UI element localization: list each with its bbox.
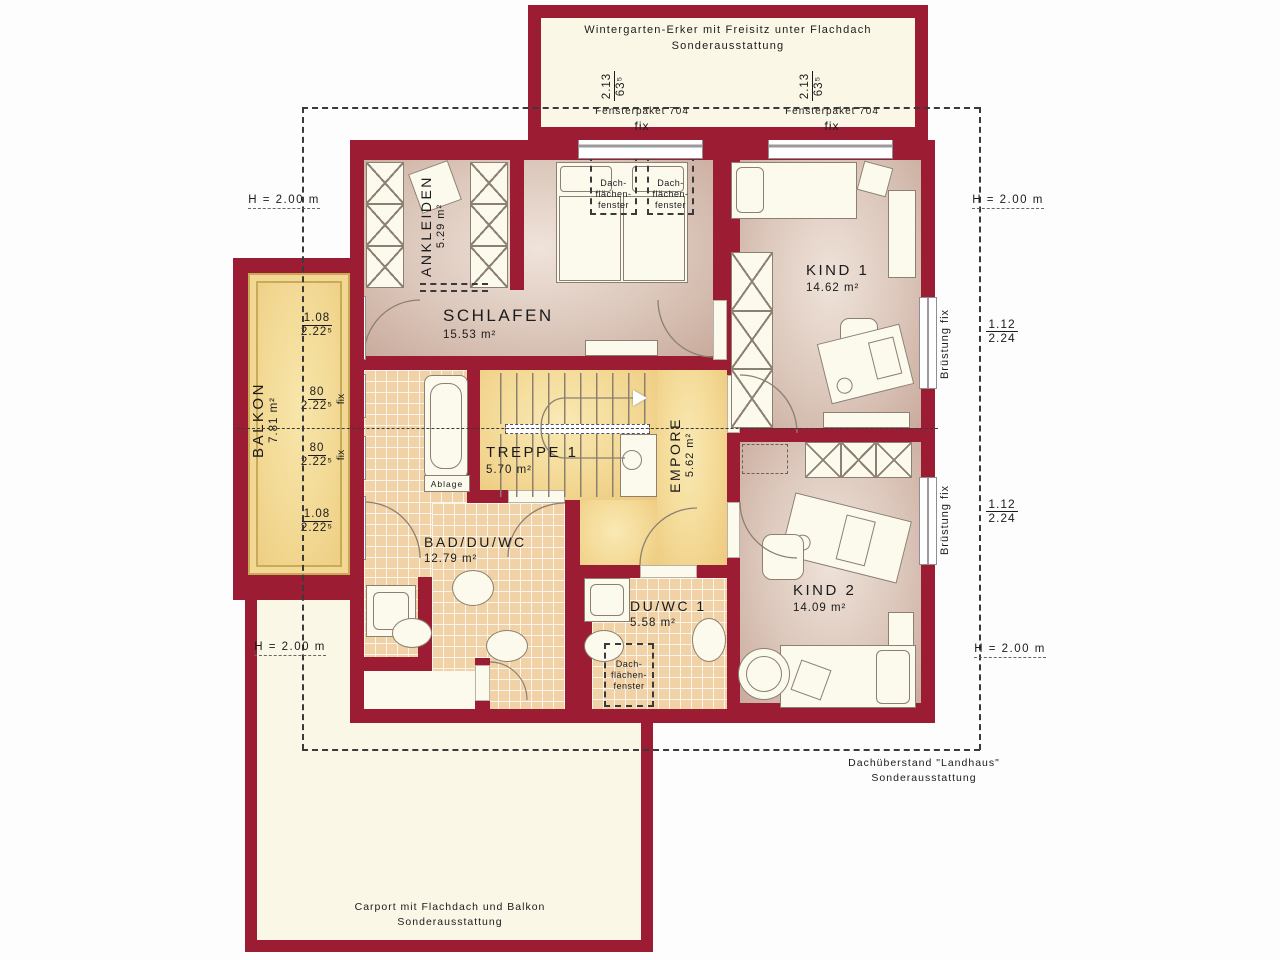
room-area: 5.29 m² [435, 161, 447, 291]
room-area: 5.58 m² [630, 617, 707, 629]
wintergarten-title-line1: Wintergarten-Erker mit Freisitz unter Fl… [528, 22, 928, 38]
room-name: KIND 1 [806, 262, 869, 279]
kind1-label: KIND 1 14.62 m² [806, 262, 869, 294]
fix-label-left: fix [570, 119, 714, 133]
wintergarten-title-line2: Sonderausstattung [528, 38, 928, 54]
dim-value: 1.08 [302, 508, 332, 522]
dim-value: 63⁵ [615, 76, 627, 97]
shelf-kind1 [823, 412, 910, 428]
roof-window-line: fenster [595, 200, 631, 211]
ankleiden-label: ANKLEIDEN 5.29 m² [418, 161, 458, 291]
roof-window-line: Dach- [652, 178, 688, 189]
roof-window-line: Dach- [611, 659, 647, 670]
wardrobe-cell [470, 246, 508, 288]
room-name: BAD/DU/WC [424, 534, 527, 550]
shower-duwc-tray [590, 584, 624, 616]
wall-empore-bottom-left [580, 565, 640, 578]
dim-value: 1.12 [986, 318, 1017, 332]
dim-value: 2.22⁵ [301, 456, 333, 468]
kind2-label: KIND 2 14.09 m² [793, 582, 856, 614]
floor-plan: Carport mit Flachdach und Balkon Sondera… [0, 0, 1280, 960]
room-name: KIND 2 [793, 582, 856, 599]
room-name: ANKLEIDEN [418, 161, 434, 291]
dim-value: 2.13 [799, 71, 813, 101]
empore-label: EMPORE 5.62 m² [667, 400, 705, 510]
dim-value: 2.13 [601, 71, 615, 101]
door-leaf-niche [475, 665, 490, 701]
wardrobe-right [470, 162, 508, 288]
height-mark-text: H = 2.00 m [248, 194, 320, 209]
bathtub-inner [430, 383, 462, 469]
section-line [237, 428, 938, 429]
pillow [736, 167, 764, 213]
wardrobe-cell [366, 204, 404, 246]
roof-window-label: Dach- flächen- fenster [652, 178, 688, 213]
fix-label: fix [335, 383, 349, 415]
height-mark-bottom-right: H = 2.00 m [952, 639, 1068, 657]
bad-label: BAD/DU/WC 12.79 m² [424, 534, 527, 565]
fix-label-right: fix [760, 119, 904, 133]
floor-niche [364, 671, 475, 709]
wardrobe-cell [876, 442, 912, 478]
room-name: DU/WC 1 [630, 598, 707, 614]
roof-window-box: Dach- flächen- fenster [647, 155, 694, 215]
wardrobe-cell [731, 252, 773, 311]
desk-lamp [835, 376, 854, 395]
bruestung-label-kind1: Brüstung fix [939, 302, 955, 386]
room-area: 14.62 m² [806, 282, 869, 294]
treppe-label: TREPPE 1 5.70 m² [486, 444, 579, 476]
dachueberstand-note: Dachüberstand "Landhaus" Sonderausstattu… [796, 756, 1052, 786]
door-arc [640, 508, 697, 565]
wintergarten-title: Wintergarten-Erker mit Freisitz unter Fl… [528, 22, 928, 54]
door-arc [658, 300, 713, 357]
wall-ankleiden [510, 160, 524, 290]
cabinet-kind1 [888, 190, 916, 278]
roof-window-box: Dach- flächen- fenster [604, 643, 654, 707]
schlafen-label: SCHLAFEN 15.53 m² [443, 306, 554, 341]
wintergarten-dim-right: 2.13 63⁵ [799, 60, 833, 112]
dim-value: 80 [308, 442, 327, 456]
room-area: 12.79 m² [424, 553, 527, 565]
roof-window-label: Dach- flächen- fenster [595, 178, 631, 213]
desk-monitor [868, 336, 902, 379]
wardrobe-left [366, 162, 404, 288]
dim-value: 2.24 [988, 511, 1015, 525]
room-name: EMPORE [667, 400, 683, 510]
wintergarten-dim-left: 2.13 63⁵ [601, 60, 635, 112]
height-mark-top-left: H = 2.00 m [228, 190, 340, 208]
wall-empore-bottom-right [697, 565, 727, 578]
window-kind2 [919, 477, 937, 565]
height-mark-text: H = 2.00 m [972, 194, 1044, 209]
dim-value: 2.22⁵ [301, 400, 333, 412]
stairs-arrow [633, 390, 647, 406]
roof-window-label: Dach- flächen- fenster [611, 659, 647, 692]
ablage-shelf: Ablage [424, 475, 470, 492]
wardrobe-cell [805, 442, 841, 478]
door-arc [740, 375, 797, 433]
dim-value: 1.12 [986, 498, 1017, 512]
room-area: 7.81 m² [268, 358, 280, 482]
dim-value: 2.24 [988, 331, 1015, 345]
roof-window-box: Dach- flächen- fenster [590, 155, 637, 215]
wardrobe-kind2 [805, 442, 912, 478]
wardrobe-cell [841, 442, 877, 478]
balkon-label: BALKON 7.81 m² [250, 358, 294, 482]
dim-value: 2.22⁵ [301, 522, 333, 534]
pillow [876, 650, 910, 704]
dim-value: 63⁵ [813, 76, 825, 97]
bidet-bad [392, 618, 432, 648]
height-mark-text: H = 2.00 m [974, 643, 1046, 658]
toilet-bad [486, 630, 528, 662]
roof-window-line: fenster [652, 200, 688, 211]
desk-monitor [836, 514, 876, 566]
door-leaf-schlafen [713, 300, 727, 360]
ablage-label: Ablage [431, 479, 463, 489]
roof-window-line: fenster [611, 681, 647, 692]
dachueberstand-line1: Dachüberstand "Landhaus" [796, 756, 1052, 771]
room-area: 5.62 m² [684, 400, 696, 510]
dim-value: 1.08 [302, 312, 332, 326]
dim-value: 80 [308, 386, 327, 400]
carport-note-line2: Sonderausstattung [310, 915, 590, 930]
room-area: 15.53 m² [443, 329, 554, 341]
roof-window-line: Dach- [595, 178, 631, 189]
height-mark-text: H = 2.00 m [254, 641, 326, 656]
door-arc [364, 300, 420, 356]
dashed-closet-kind2 [742, 444, 788, 474]
roof-outline-top [302, 107, 980, 109]
carport-note: Carport mit Flachdach und Balkon Sondera… [310, 900, 590, 930]
room-area: 5.70 m² [486, 464, 579, 476]
door-arc [364, 502, 420, 558]
dresser [585, 340, 658, 356]
right-dim-kind1: 1.12 2.24 [980, 318, 1024, 345]
door-leaf-duwc [640, 565, 697, 578]
round-chair-seat [746, 656, 782, 692]
door-arc [740, 502, 797, 558]
window-kind1 [919, 297, 937, 389]
room-name: SCHLAFEN [443, 306, 554, 326]
wardrobe-cell [470, 162, 508, 204]
sink-bad [452, 570, 494, 606]
roof-window-line: flächen- [595, 189, 631, 200]
height-mark-bottom-left: H = 2.00 m [234, 637, 346, 655]
fix-label: fix [335, 439, 349, 471]
wardrobe-cell [731, 311, 773, 370]
roof-window-line: flächen- [611, 670, 647, 681]
roof-window-line: flächen- [652, 189, 688, 200]
wardrobe-cell [366, 246, 404, 288]
door-leaf-kind2 [727, 502, 740, 558]
wardrobe-cell [470, 204, 508, 246]
wardrobe-cell [366, 162, 404, 204]
dim-value: 2.22⁵ [301, 326, 333, 338]
right-dim-kind2: 1.12 2.24 [980, 498, 1024, 525]
dachueberstand-line2: Sonderausstattung [796, 771, 1052, 786]
roof-outline-bottom [302, 749, 980, 751]
height-mark-top-right: H = 2.00 m [950, 190, 1066, 208]
door-arc [490, 662, 527, 700]
room-name: TREPPE 1 [486, 444, 579, 461]
duwc-label: DU/WC 1 5.58 m² [630, 598, 707, 629]
bruestung-label-kind2: Brüstung fix [939, 478, 955, 562]
carport-note-line1: Carport mit Flachdach und Balkon [310, 900, 590, 915]
room-name: BALKON [250, 358, 267, 482]
room-area: 14.09 m² [793, 602, 856, 614]
side-table-kind2 [888, 612, 914, 646]
